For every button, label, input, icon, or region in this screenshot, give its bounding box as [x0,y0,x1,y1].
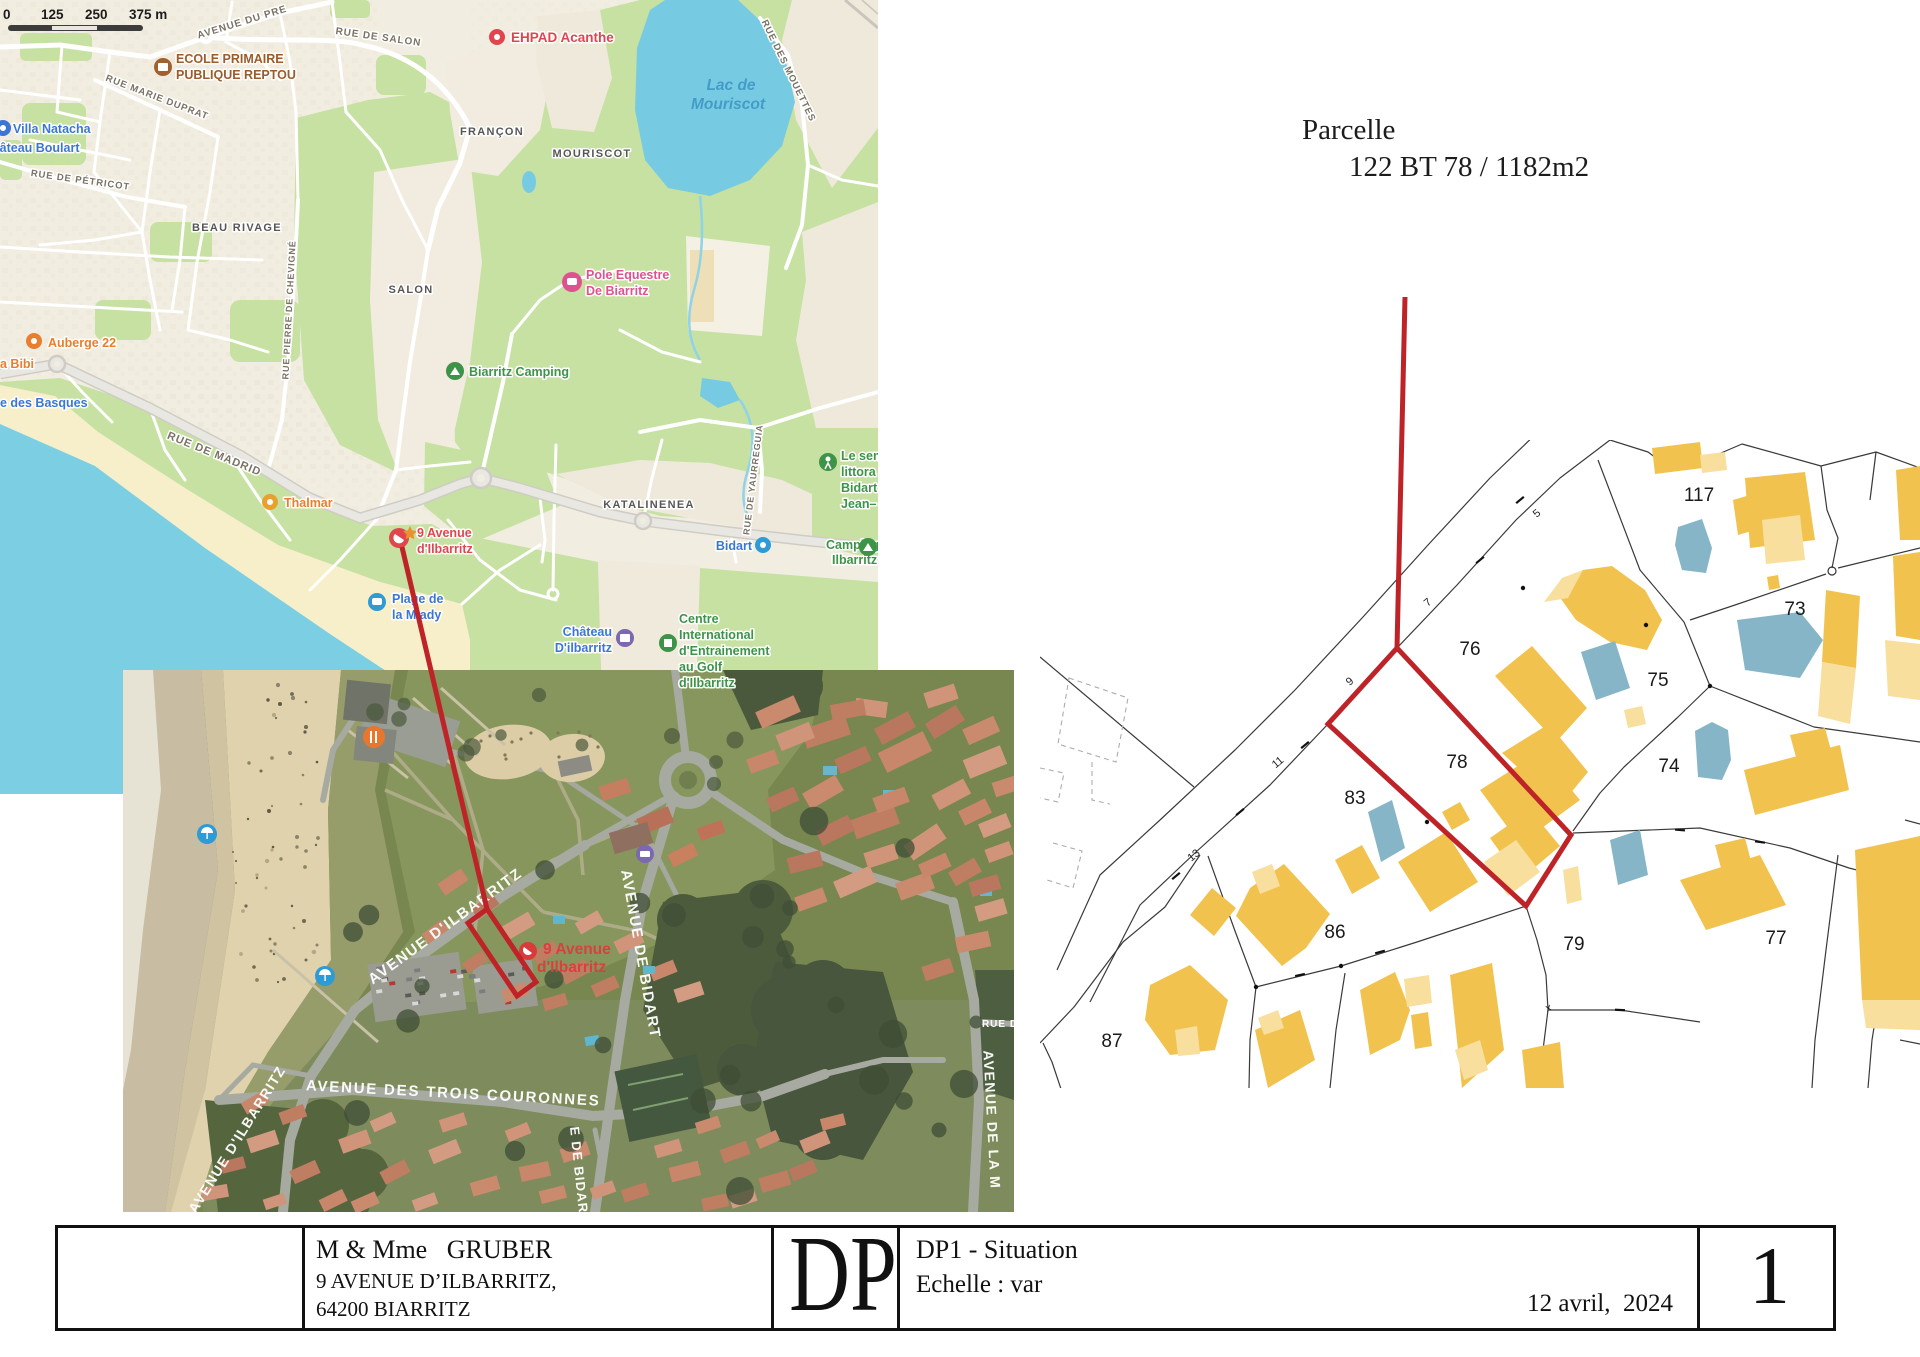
svg-text:au Golf: au Golf [679,660,723,674]
svg-text:International: International [679,628,754,642]
svg-text:d'Ilbarritz: d'Ilbarritz [679,676,735,690]
svg-text:Centre: Centre [679,612,719,626]
svg-text:d'Entrainement: d'Entrainement [679,644,770,658]
